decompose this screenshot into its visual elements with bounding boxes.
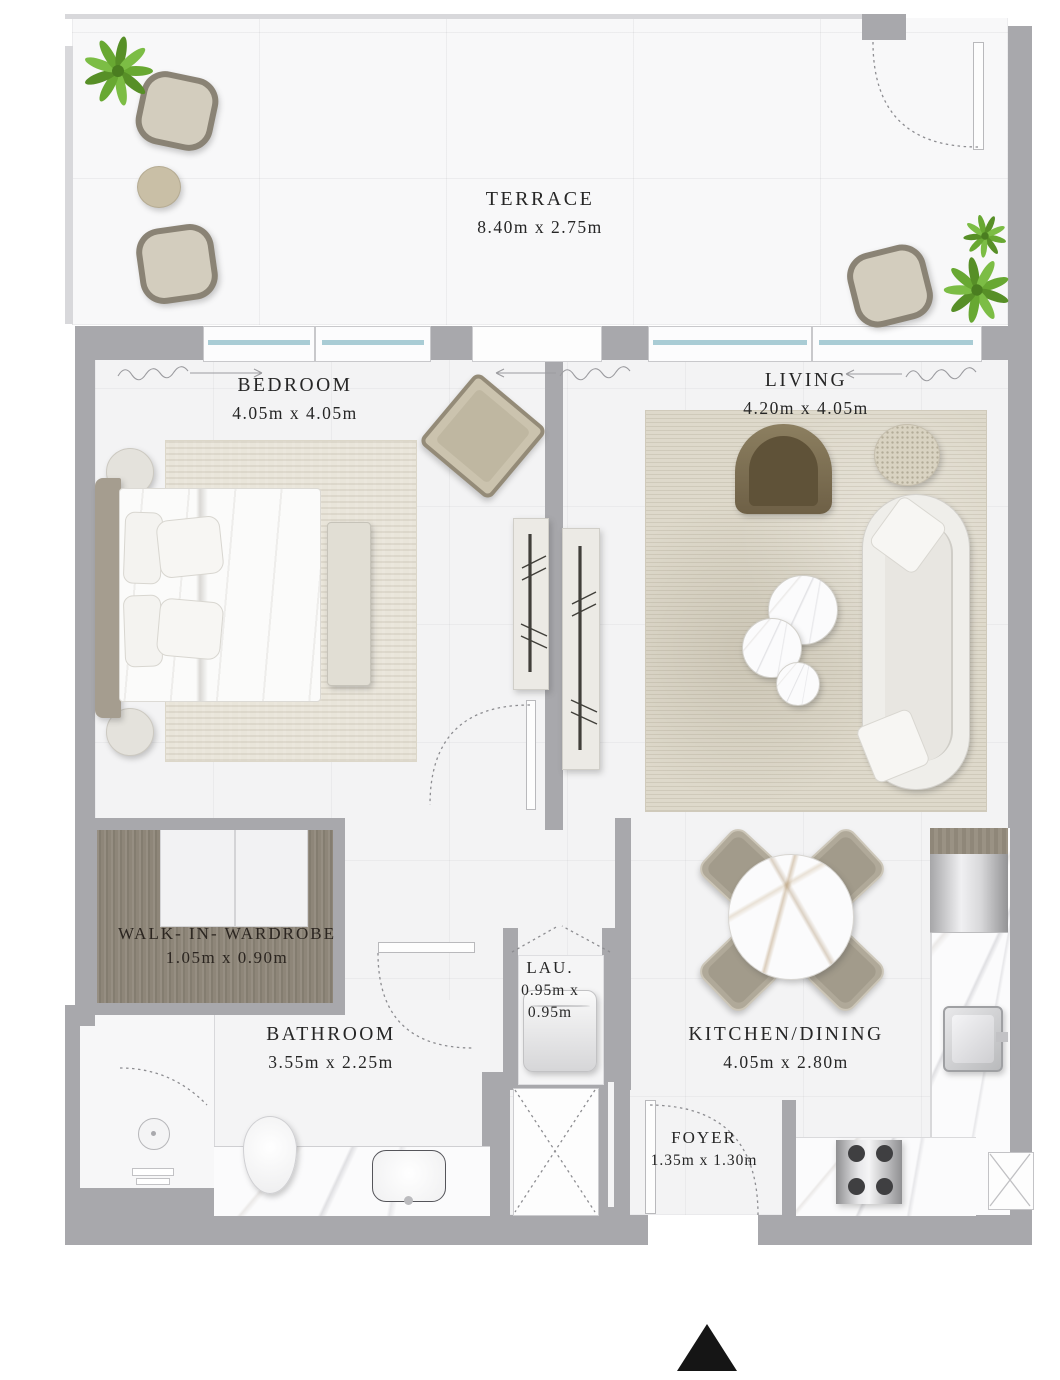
apartment-floor-plan: TERRACE 8.40m x 2.75m BEDROOM 4.05m x 4.… bbox=[0, 0, 1060, 1380]
window-glass bbox=[819, 340, 973, 345]
bedroom-window bbox=[203, 326, 431, 362]
cooktop bbox=[836, 1140, 902, 1204]
room-dims: 1.35m x 1.30m bbox=[619, 1152, 789, 1170]
bed-headboard bbox=[95, 478, 121, 718]
pouf bbox=[874, 424, 940, 486]
room-dims: 4.20m x 4.05m bbox=[656, 398, 956, 419]
room-label-bedroom: BEDROOM 4.05m x 4.05m bbox=[145, 375, 445, 424]
wall-bottom-right bbox=[758, 1215, 1032, 1245]
closet-door-divider bbox=[234, 830, 236, 926]
room-dims: 3.55m x 2.25m bbox=[181, 1052, 481, 1073]
window-glass bbox=[653, 340, 807, 345]
wall-segment bbox=[862, 14, 906, 40]
living-window bbox=[648, 326, 982, 362]
room-dims: 0.95m bbox=[495, 1004, 605, 1022]
armchair bbox=[735, 424, 832, 514]
bed-pillow bbox=[155, 515, 225, 579]
terrace-chair bbox=[133, 221, 221, 307]
window-mullion bbox=[314, 327, 316, 361]
bed-bench bbox=[327, 522, 371, 686]
terrace-side-table bbox=[137, 166, 181, 208]
kitchen-upper-wood bbox=[930, 828, 1008, 854]
room-name: FOYER bbox=[619, 1128, 789, 1148]
terrace-chair-cushion bbox=[140, 228, 214, 301]
room-name: LIVING bbox=[656, 370, 956, 392]
kitchen-sink bbox=[943, 1006, 1003, 1072]
room-label-kitchen: KITCHEN/DINING 4.05m x 2.80m bbox=[636, 1024, 936, 1073]
room-label-wardrobe: WALK- IN- WARDROBE 1.05m x 0.90m bbox=[77, 924, 377, 968]
north-arrow-icon bbox=[677, 1324, 737, 1371]
window-glass bbox=[322, 340, 424, 345]
wall-top-b bbox=[427, 326, 472, 360]
terrace-chair-cushion bbox=[138, 74, 215, 148]
room-name: KITCHEN/DINING bbox=[636, 1024, 936, 1046]
wall-bath-corner bbox=[65, 1188, 215, 1245]
shower-valve bbox=[132, 1168, 174, 1176]
duct-shaft bbox=[513, 1088, 599, 1216]
wall-top-d bbox=[978, 326, 1008, 360]
room-name: TERRACE bbox=[390, 188, 690, 211]
terrace-door-leaf bbox=[973, 42, 984, 150]
sink-faucet-dot bbox=[404, 1196, 413, 1205]
terrace-chair-cushion bbox=[849, 247, 930, 326]
shower-head-icon bbox=[138, 1118, 170, 1150]
room-name: BATHROOM bbox=[181, 1024, 481, 1046]
wardrobe-closet-doors bbox=[160, 830, 308, 927]
dining-table bbox=[728, 854, 854, 980]
cabinet bbox=[513, 518, 549, 690]
door-frame-slit bbox=[608, 1082, 614, 1207]
shower-valve bbox=[136, 1178, 170, 1185]
terrace-parapet-top bbox=[65, 14, 865, 19]
shower-head-dot bbox=[151, 1131, 156, 1136]
wall-top-c bbox=[600, 326, 648, 360]
ac-unit bbox=[988, 1152, 1034, 1210]
sink-basin bbox=[952, 1015, 994, 1063]
room-label-bathroom: BATHROOM 3.55m x 2.25m bbox=[181, 1024, 481, 1073]
kitchen-faucet bbox=[996, 1032, 1008, 1042]
bathroom-sink bbox=[372, 1150, 446, 1202]
burner bbox=[848, 1145, 865, 1162]
fridge bbox=[930, 854, 1008, 933]
window-mullion bbox=[811, 327, 813, 361]
room-dims: 4.05m x 2.80m bbox=[636, 1052, 936, 1073]
room-label-laundry: LAU. 0.95m x 0.95m bbox=[495, 958, 605, 1022]
room-name: WALK- IN- WARDROBE bbox=[77, 924, 377, 944]
bedroom-door-leaf bbox=[526, 700, 536, 810]
room-dims: 0.95m x bbox=[495, 982, 605, 1000]
room-label-foyer: FOYER 1.35m x 1.30m bbox=[619, 1128, 789, 1170]
wall-right bbox=[1008, 26, 1032, 1245]
wall-kitchen-left bbox=[615, 818, 631, 1090]
window-glass bbox=[208, 340, 310, 345]
bathroom-door-leaf bbox=[378, 942, 475, 953]
burner bbox=[876, 1145, 893, 1162]
room-name: LAU. bbox=[495, 958, 605, 978]
curtain-box bbox=[472, 326, 602, 362]
cabinet bbox=[562, 528, 600, 770]
burner bbox=[848, 1178, 865, 1195]
terrace-parapet-left bbox=[65, 46, 73, 324]
room-dims: 4.05m x 4.05m bbox=[145, 403, 445, 424]
room-label-living: LIVING 4.20m x 4.05m bbox=[656, 370, 956, 419]
room-label-terrace: TERRACE 8.40m x 2.75m bbox=[390, 188, 690, 238]
burner bbox=[876, 1178, 893, 1195]
coffee-table bbox=[776, 662, 820, 706]
room-dims: 1.05m x 0.90m bbox=[77, 948, 377, 968]
armchair-seat bbox=[749, 436, 818, 506]
bed-pillow bbox=[156, 597, 225, 660]
room-name: BEDROOM bbox=[145, 375, 445, 397]
room-dims: 8.40m x 2.75m bbox=[390, 217, 690, 238]
